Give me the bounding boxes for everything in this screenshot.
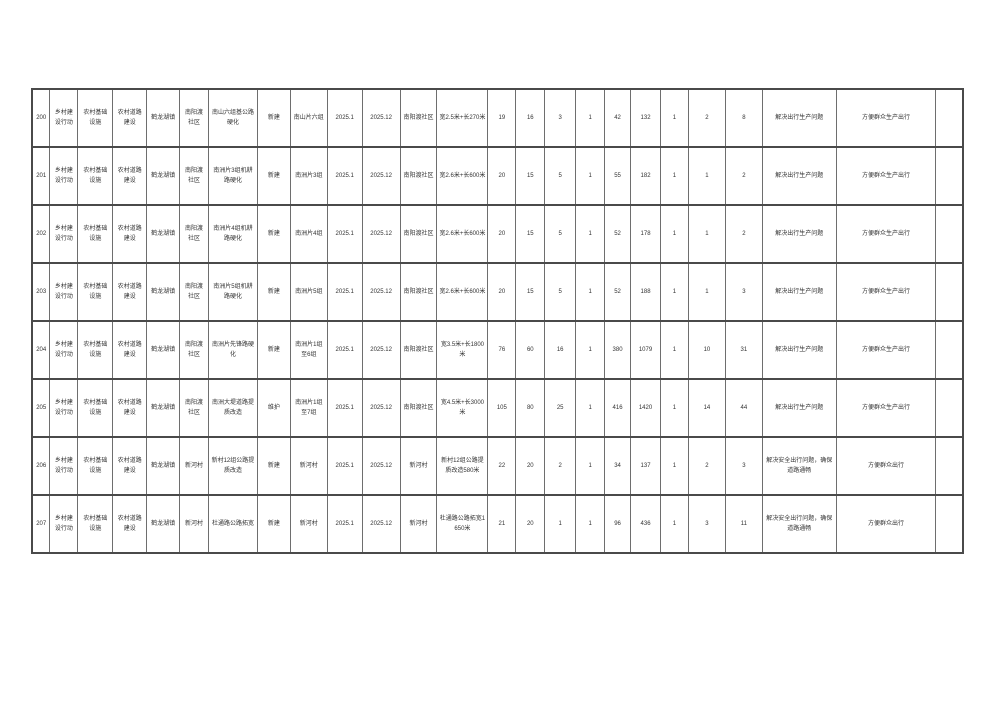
cell-202-num3: 5 bbox=[545, 205, 576, 263]
cell-204-num2: 60 bbox=[516, 321, 545, 379]
cell-205-num1: 105 bbox=[488, 379, 516, 437]
cell-201-num7: 1 bbox=[661, 147, 689, 205]
cell-203-benefit: 方便群众生产出行 bbox=[836, 263, 936, 321]
cell-206-subcategory: 农村道路建设 bbox=[113, 437, 147, 495]
cell-206-effect: 解决安全出行问题，确保道路通畅 bbox=[762, 437, 836, 495]
cell-203-num6: 188 bbox=[631, 263, 661, 321]
cell-202-effect: 解决出行生产问题 bbox=[762, 205, 836, 263]
cell-207-num2: 20 bbox=[516, 495, 545, 553]
cell-207-effect: 解决安全出行问题，确保道路通畅 bbox=[762, 495, 836, 553]
cell-201-category: 农村基础设施 bbox=[78, 147, 113, 205]
cell-206-category: 农村基础设施 bbox=[78, 437, 113, 495]
cell-203-village: 南阳渡社区 bbox=[180, 263, 209, 321]
cell-205-num5: 416 bbox=[605, 379, 631, 437]
cell-201-seq: 201 bbox=[32, 147, 50, 205]
cell-200-subcategory: 农村道路建设 bbox=[113, 89, 147, 147]
cell-201-action: 乡村建设行动 bbox=[50, 147, 78, 205]
cell-205-num7: 1 bbox=[661, 379, 689, 437]
cell-204-benefit: 方便群众生产出行 bbox=[836, 321, 936, 379]
cell-204-action: 乡村建设行动 bbox=[50, 321, 78, 379]
cell-203-town: 鹤龙湖镇 bbox=[147, 263, 180, 321]
cell-207-num7: 1 bbox=[661, 495, 689, 553]
cell-206-implement-unit: 新河村 bbox=[400, 437, 437, 495]
cell-203-category: 农村基础设施 bbox=[78, 263, 113, 321]
cell-203-end-date: 2025.12 bbox=[362, 263, 400, 321]
cell-201-num2: 15 bbox=[516, 147, 545, 205]
cell-204-blank bbox=[936, 321, 963, 379]
cell-202-category: 农村基础设施 bbox=[78, 205, 113, 263]
cell-204-category: 农村基础设施 bbox=[78, 321, 113, 379]
cell-200-seq: 200 bbox=[32, 89, 50, 147]
cell-206-num2: 20 bbox=[516, 437, 545, 495]
cell-202-blank bbox=[936, 205, 963, 263]
cell-200-town: 鹤龙湖镇 bbox=[147, 89, 180, 147]
cell-206-num4: 1 bbox=[576, 437, 605, 495]
cell-200-project-name: 南山六组基公路硬化 bbox=[209, 89, 258, 147]
cell-204-num7: 1 bbox=[661, 321, 689, 379]
cell-204-build-nature: 新建 bbox=[257, 321, 290, 379]
cell-206-benefit: 方便群众出行 bbox=[836, 437, 936, 495]
cell-206-end-date: 2025.12 bbox=[362, 437, 400, 495]
cell-205-num6: 1420 bbox=[631, 379, 661, 437]
cell-204-subcategory: 农村道路建设 bbox=[113, 321, 147, 379]
cell-202-num4: 1 bbox=[576, 205, 605, 263]
cell-207-num5: 96 bbox=[605, 495, 631, 553]
cell-205-num8: 14 bbox=[688, 379, 725, 437]
cell-202-num6: 178 bbox=[631, 205, 661, 263]
cell-202-location: 南洲片4组 bbox=[290, 205, 327, 263]
cell-203-scale: 宽2.6米+长600米 bbox=[437, 263, 488, 321]
cell-203-num2: 15 bbox=[516, 263, 545, 321]
cell-204-start-date: 2025.1 bbox=[327, 321, 362, 379]
cell-202-num8: 1 bbox=[688, 205, 725, 263]
cell-207-scale: 杜通路公路拓宽1650米 bbox=[437, 495, 488, 553]
cell-205-blank bbox=[936, 379, 963, 437]
cell-200-start-date: 2025.1 bbox=[327, 89, 362, 147]
cell-202-start-date: 2025.1 bbox=[327, 205, 362, 263]
projects-table-body: 200乡村建设行动农村基础设施农村道路建设鹤龙湖镇南阳渡社区南山六组基公路硬化新… bbox=[32, 89, 963, 553]
cell-207-location: 新河村 bbox=[290, 495, 327, 553]
cell-203-subcategory: 农村道路建设 bbox=[113, 263, 147, 321]
cell-200-benefit: 方便群众生产出行 bbox=[836, 89, 936, 147]
cell-202-build-nature: 新建 bbox=[257, 205, 290, 263]
cell-201-num1: 20 bbox=[488, 147, 516, 205]
cell-201-build-nature: 新建 bbox=[257, 147, 290, 205]
cell-203-blank bbox=[936, 263, 963, 321]
table-row-205: 205乡村建设行动农村基础设施农村道路建设鹤龙湖镇南阳渡社区南洲大堤道路提质改造… bbox=[32, 379, 963, 437]
cell-201-benefit: 方便群众生产出行 bbox=[836, 147, 936, 205]
cell-200-num8: 2 bbox=[688, 89, 725, 147]
cell-205-seq: 205 bbox=[32, 379, 50, 437]
table-row-200: 200乡村建设行动农村基础设施农村道路建设鹤龙湖镇南阳渡社区南山六组基公路硬化新… bbox=[32, 89, 963, 147]
cell-204-end-date: 2025.12 bbox=[362, 321, 400, 379]
cell-201-implement-unit: 南阳渡社区 bbox=[400, 147, 437, 205]
cell-207-project-name: 杜通路公路拓宽 bbox=[209, 495, 258, 553]
cell-206-action: 乡村建设行动 bbox=[50, 437, 78, 495]
table-row-207: 207乡村建设行动农村基础设施农村道路建设鹤龙湖镇新河村杜通路公路拓宽新建新河村… bbox=[32, 495, 963, 553]
cell-205-num2: 80 bbox=[516, 379, 545, 437]
cell-206-town: 鹤龙湖镇 bbox=[147, 437, 180, 495]
cell-201-num3: 5 bbox=[545, 147, 576, 205]
cell-204-num3: 16 bbox=[545, 321, 576, 379]
cell-207-num6: 436 bbox=[631, 495, 661, 553]
cell-203-num1: 20 bbox=[488, 263, 516, 321]
cell-203-build-nature: 新建 bbox=[257, 263, 290, 321]
cell-202-benefit: 方便群众生产出行 bbox=[836, 205, 936, 263]
cell-205-benefit: 方便群众生产出行 bbox=[836, 379, 936, 437]
cell-200-num5: 42 bbox=[605, 89, 631, 147]
cell-204-seq: 204 bbox=[32, 321, 50, 379]
cell-204-village: 南阳渡社区 bbox=[180, 321, 209, 379]
cell-206-num9: 3 bbox=[725, 437, 762, 495]
cell-207-num9: 11 bbox=[725, 495, 762, 553]
cell-202-action: 乡村建设行动 bbox=[50, 205, 78, 263]
cell-207-town: 鹤龙湖镇 bbox=[147, 495, 180, 553]
cell-206-start-date: 2025.1 bbox=[327, 437, 362, 495]
cell-200-blank bbox=[936, 89, 963, 147]
cell-201-num5: 55 bbox=[605, 147, 631, 205]
cell-203-seq: 203 bbox=[32, 263, 50, 321]
cell-205-implement-unit: 南阳渡社区 bbox=[400, 379, 437, 437]
cell-205-num9: 44 bbox=[725, 379, 762, 437]
cell-201-effect: 解决出行生产问题 bbox=[762, 147, 836, 205]
cell-201-num4: 1 bbox=[576, 147, 605, 205]
cell-204-num9: 31 bbox=[725, 321, 762, 379]
cell-206-num5: 34 bbox=[605, 437, 631, 495]
cell-201-num6: 182 bbox=[631, 147, 661, 205]
cell-202-seq: 202 bbox=[32, 205, 50, 263]
cell-207-village: 新河村 bbox=[180, 495, 209, 553]
cell-202-num7: 1 bbox=[661, 205, 689, 263]
cell-200-location: 南山片六组 bbox=[290, 89, 327, 147]
cell-206-seq: 206 bbox=[32, 437, 50, 495]
cell-201-town: 鹤龙湖镇 bbox=[147, 147, 180, 205]
cell-205-town: 鹤龙湖镇 bbox=[147, 379, 180, 437]
cell-205-scale: 宽4.5米+长3000米 bbox=[437, 379, 488, 437]
cell-203-num5: 52 bbox=[605, 263, 631, 321]
table-row-203: 203乡村建设行动农村基础设施农村道路建设鹤龙湖镇南阳渡社区南洲片5组机耕路硬化… bbox=[32, 263, 963, 321]
cell-200-num4: 1 bbox=[576, 89, 605, 147]
cell-206-num8: 2 bbox=[688, 437, 725, 495]
cell-200-num2: 16 bbox=[516, 89, 545, 147]
cell-200-num3: 3 bbox=[545, 89, 576, 147]
cell-200-scale: 宽2.5米+长270米 bbox=[437, 89, 488, 147]
cell-204-implement-unit: 南阳渡社区 bbox=[400, 321, 437, 379]
cell-201-scale: 宽2.6米+长600米 bbox=[437, 147, 488, 205]
cell-207-action: 乡村建设行动 bbox=[50, 495, 78, 553]
cell-203-num3: 5 bbox=[545, 263, 576, 321]
cell-202-town: 鹤龙湖镇 bbox=[147, 205, 180, 263]
table-row-201: 201乡村建设行动农村基础设施农村道路建设鹤龙湖镇南阳渡社区南洲片3组机耕路硬化… bbox=[32, 147, 963, 205]
cell-206-num6: 137 bbox=[631, 437, 661, 495]
cell-200-village: 南阳渡社区 bbox=[180, 89, 209, 147]
cell-207-num4: 1 bbox=[576, 495, 605, 553]
cell-207-implement-unit: 新河村 bbox=[400, 495, 437, 553]
cell-207-benefit: 方便群众出行 bbox=[836, 495, 936, 553]
cell-202-num2: 15 bbox=[516, 205, 545, 263]
cell-203-location: 南洲片5组 bbox=[290, 263, 327, 321]
cell-201-project-name: 南洲片3组机耕路硬化 bbox=[209, 147, 258, 205]
cell-207-num1: 21 bbox=[488, 495, 516, 553]
cell-201-num9: 2 bbox=[725, 147, 762, 205]
cell-205-num3: 25 bbox=[545, 379, 576, 437]
cell-200-category: 农村基础设施 bbox=[78, 89, 113, 147]
cell-203-num4: 1 bbox=[576, 263, 605, 321]
cell-206-location: 新河村 bbox=[290, 437, 327, 495]
cell-200-num7: 1 bbox=[661, 89, 689, 147]
cell-202-num9: 2 bbox=[725, 205, 762, 263]
cell-205-end-date: 2025.12 bbox=[362, 379, 400, 437]
table-row-206: 206乡村建设行动农村基础设施农村道路建设鹤龙湖镇新河村新村12组公路提质改造新… bbox=[32, 437, 963, 495]
cell-206-num1: 22 bbox=[488, 437, 516, 495]
cell-202-num1: 20 bbox=[488, 205, 516, 263]
cell-206-build-nature: 新建 bbox=[257, 437, 290, 495]
cell-200-action: 乡村建设行动 bbox=[50, 89, 78, 147]
cell-204-num8: 10 bbox=[688, 321, 725, 379]
table-row-204: 204乡村建设行动农村基础设施农村道路建设鹤龙湖镇南阳渡社区南洲片先锋路硬化新建… bbox=[32, 321, 963, 379]
cell-206-village: 新河村 bbox=[180, 437, 209, 495]
cell-205-subcategory: 农村道路建设 bbox=[113, 379, 147, 437]
cell-205-build-nature: 维护 bbox=[257, 379, 290, 437]
cell-205-project-name: 南洲大堤道路提质改造 bbox=[209, 379, 258, 437]
cell-200-num1: 19 bbox=[488, 89, 516, 147]
cell-204-num1: 76 bbox=[488, 321, 516, 379]
cell-203-action: 乡村建设行动 bbox=[50, 263, 78, 321]
cell-205-action: 乡村建设行动 bbox=[50, 379, 78, 437]
cell-203-project-name: 南洲片5组机耕路硬化 bbox=[209, 263, 258, 321]
cell-200-num6: 132 bbox=[631, 89, 661, 147]
table-row-202: 202乡村建设行动农村基础设施农村道路建设鹤龙湖镇南阳渡社区南洲片4组机耕路硬化… bbox=[32, 205, 963, 263]
cell-201-start-date: 2025.1 bbox=[327, 147, 362, 205]
cell-200-end-date: 2025.12 bbox=[362, 89, 400, 147]
cell-207-subcategory: 农村道路建设 bbox=[113, 495, 147, 553]
cell-204-town: 鹤龙湖镇 bbox=[147, 321, 180, 379]
cell-207-num8: 3 bbox=[688, 495, 725, 553]
cell-201-village: 南阳渡社区 bbox=[180, 147, 209, 205]
cell-207-category: 农村基础设施 bbox=[78, 495, 113, 553]
cell-202-num5: 52 bbox=[605, 205, 631, 263]
cell-207-blank bbox=[936, 495, 963, 553]
cell-205-start-date: 2025.1 bbox=[327, 379, 362, 437]
cell-202-project-name: 南洲片4组机耕路硬化 bbox=[209, 205, 258, 263]
cell-207-start-date: 2025.1 bbox=[327, 495, 362, 553]
cell-204-effect: 解决出行生产问题 bbox=[762, 321, 836, 379]
cell-202-village: 南阳渡社区 bbox=[180, 205, 209, 263]
cell-203-num8: 1 bbox=[688, 263, 725, 321]
projects-table: 200乡村建设行动农村基础设施农村道路建设鹤龙湖镇南阳渡社区南山六组基公路硬化新… bbox=[31, 88, 964, 554]
cell-201-location: 南洲片3组 bbox=[290, 147, 327, 205]
cell-204-location: 南洲片1组至6组 bbox=[290, 321, 327, 379]
cell-201-blank bbox=[936, 147, 963, 205]
cell-205-num4: 1 bbox=[576, 379, 605, 437]
cell-207-num3: 1 bbox=[545, 495, 576, 553]
cell-207-end-date: 2025.12 bbox=[362, 495, 400, 553]
cell-200-implement-unit: 南阳渡社区 bbox=[400, 89, 437, 147]
cell-206-num3: 2 bbox=[545, 437, 576, 495]
cell-205-village: 南阳渡社区 bbox=[180, 379, 209, 437]
cell-204-scale: 宽3.5米+长1800米 bbox=[437, 321, 488, 379]
cell-202-end-date: 2025.12 bbox=[362, 205, 400, 263]
cell-206-scale: 新村12组公路提质改造580米 bbox=[437, 437, 488, 495]
cell-203-implement-unit: 南阳渡社区 bbox=[400, 263, 437, 321]
cell-206-blank bbox=[936, 437, 963, 495]
cell-200-build-nature: 新建 bbox=[257, 89, 290, 147]
cell-203-effect: 解决出行生产问题 bbox=[762, 263, 836, 321]
cell-201-num8: 1 bbox=[688, 147, 725, 205]
cell-206-num7: 1 bbox=[661, 437, 689, 495]
cell-201-end-date: 2025.12 bbox=[362, 147, 400, 205]
cell-207-seq: 207 bbox=[32, 495, 50, 553]
cell-200-effect: 解决出行生产问题 bbox=[762, 89, 836, 147]
cell-202-subcategory: 农村道路建设 bbox=[113, 205, 147, 263]
cell-207-build-nature: 新建 bbox=[257, 495, 290, 553]
cell-205-effect: 解决出行生产问题 bbox=[762, 379, 836, 437]
cell-205-location: 南洲片1组至7组 bbox=[290, 379, 327, 437]
cell-205-category: 农村基础设施 bbox=[78, 379, 113, 437]
cell-203-num9: 3 bbox=[725, 263, 762, 321]
cell-200-num9: 8 bbox=[725, 89, 762, 147]
cell-203-num7: 1 bbox=[661, 263, 689, 321]
cell-203-start-date: 2025.1 bbox=[327, 263, 362, 321]
cell-204-num4: 1 bbox=[576, 321, 605, 379]
document-page: 200乡村建设行动农村基础设施农村道路建设鹤龙湖镇南阳渡社区南山六组基公路硬化新… bbox=[0, 0, 1000, 706]
cell-202-implement-unit: 南阳渡社区 bbox=[400, 205, 437, 263]
cell-206-project-name: 新村12组公路提质改造 bbox=[209, 437, 258, 495]
cell-201-subcategory: 农村道路建设 bbox=[113, 147, 147, 205]
cell-204-num5: 380 bbox=[605, 321, 631, 379]
cell-204-project-name: 南洲片先锋路硬化 bbox=[209, 321, 258, 379]
cell-202-scale: 宽2.6米+长600米 bbox=[437, 205, 488, 263]
cell-204-num6: 1079 bbox=[631, 321, 661, 379]
